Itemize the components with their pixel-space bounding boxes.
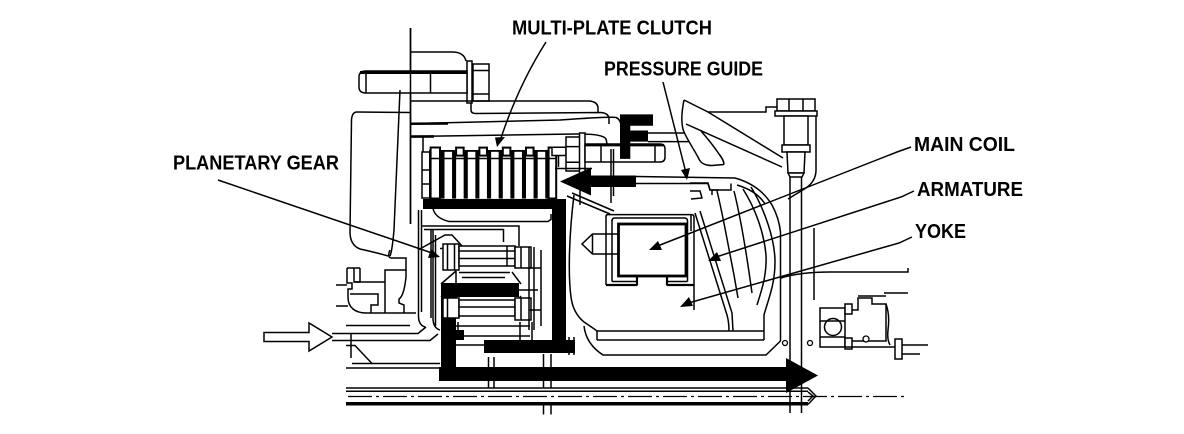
svg-text:ARMATURE: ARMATURE <box>917 178 1023 201</box>
svg-text:YOKE: YOKE <box>915 220 966 243</box>
svg-text:PRESSURE GUIDE: PRESSURE GUIDE <box>604 58 763 81</box>
svg-text:MULTI-PLATE CLUTCH: MULTI-PLATE CLUTCH <box>512 17 712 40</box>
svg-text:MAIN COIL: MAIN COIL <box>914 133 1015 156</box>
svg-text:PLANETARY GEAR: PLANETARY GEAR <box>173 152 339 175</box>
